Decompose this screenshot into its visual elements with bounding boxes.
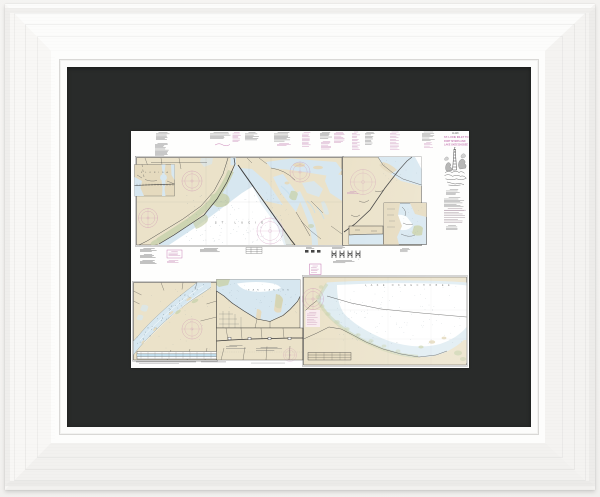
svg-text:S T. L U C I E: S T. L U C I E (215, 223, 265, 225)
svg-text:LAKE OKEECHOBEE: LAKE OKEECHOBEE (444, 143, 468, 147)
svg-text:L A K E O K E E C H O B E E: L A K E O K E E C H O B E E (365, 284, 452, 287)
svg-text:S A N C A R L O S: S A N C A R L O S (248, 289, 290, 292)
svg-text:F L O R I D A: F L O R I D A (141, 171, 169, 174)
svg-text:+: + (358, 258, 360, 260)
